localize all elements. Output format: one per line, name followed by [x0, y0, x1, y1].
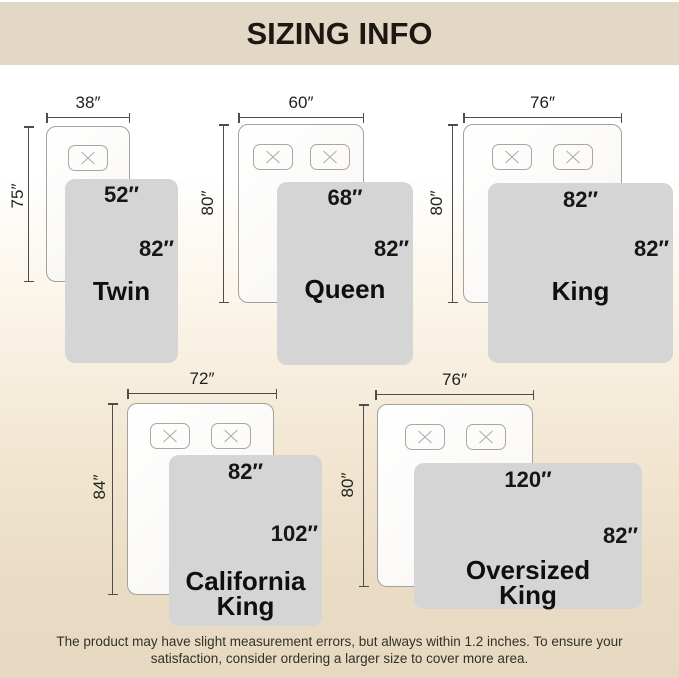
disclaimer-note: The product may have slight measurement …	[0, 634, 679, 667]
blanket-width-label: 120″	[414, 467, 642, 493]
width-dimension-line	[375, 394, 534, 395]
pillow-x-icon	[406, 425, 444, 449]
mattress-width-label: 76″	[375, 369, 534, 391]
sizing-info-graphic: SIZING INFO 38″ 75″ 52″ 82″ Twin 60″ 80″	[0, 0, 679, 678]
size-name: Oversized King	[414, 558, 642, 608]
length-dimension-line	[363, 404, 364, 587]
mattress-length-label: 80″	[337, 463, 359, 507]
size-diagram-oversized-king: 76″ 80″ 120″ 82″ Oversized King	[0, 0, 679, 678]
pillow-x-icon	[467, 425, 505, 449]
blanket-rect: 120″ 82″ Oversized King	[414, 463, 642, 609]
pillow-icon	[405, 424, 445, 450]
pillow-icon	[466, 424, 506, 450]
blanket-length-label: 82″	[603, 523, 638, 549]
